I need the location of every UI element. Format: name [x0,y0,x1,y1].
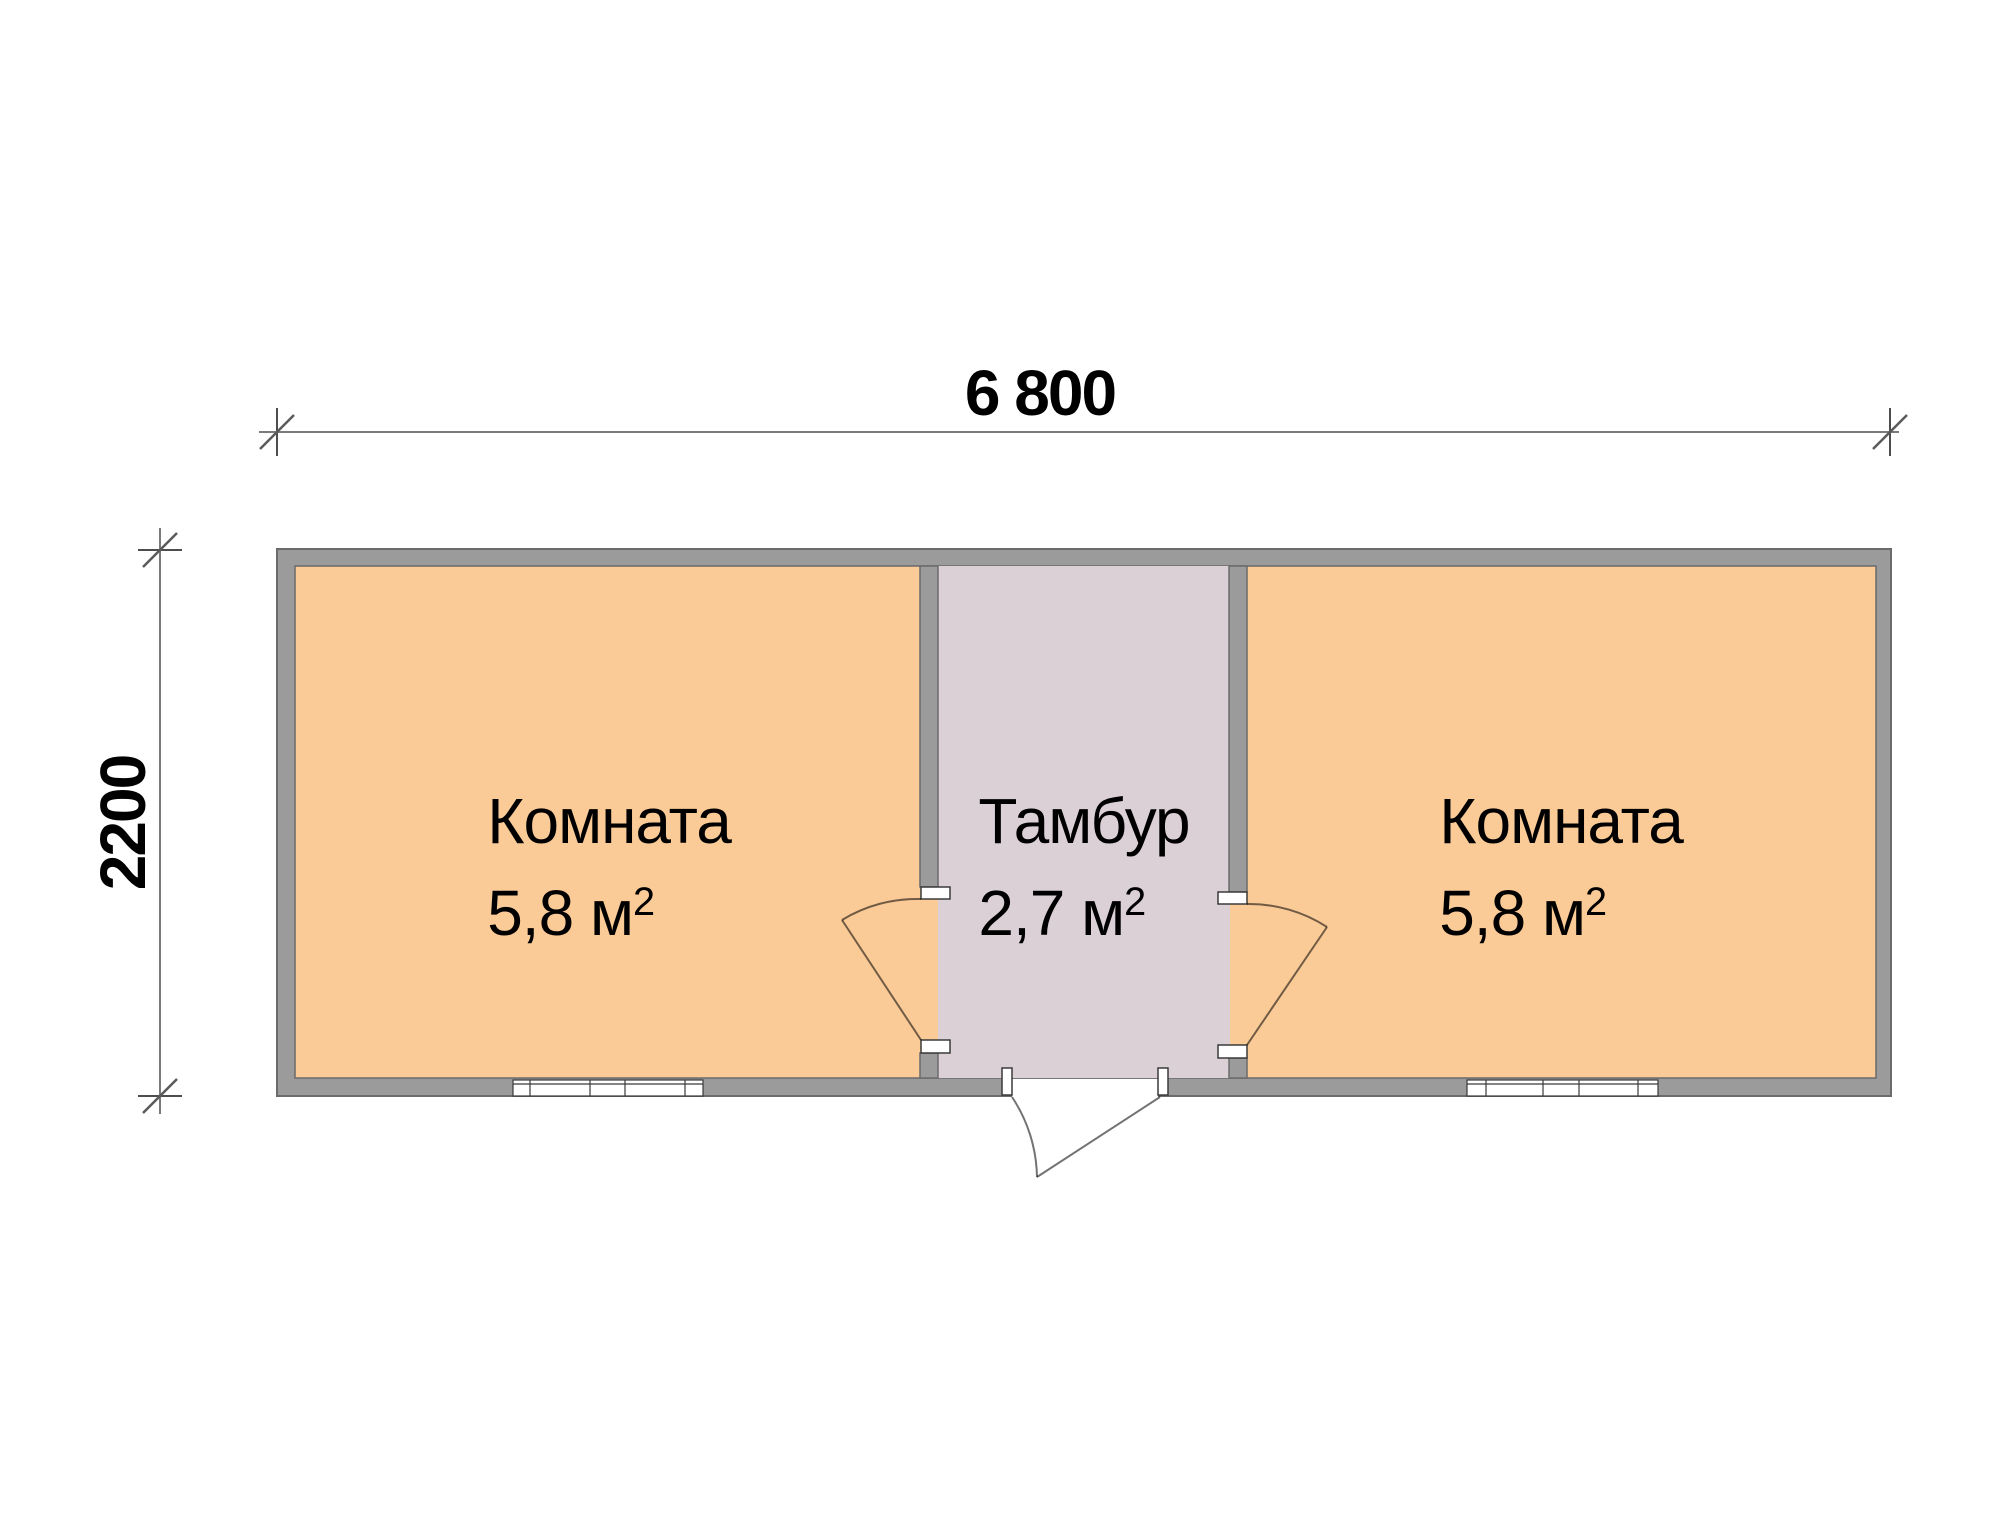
room-left-label: Комната 5,8 м2 [295,775,923,968]
room-right-area-sup: 2 [1585,880,1606,924]
floor-plan: 6 800 2200 Комната 5,8 м2 Тамбур 2,7 м2 … [0,0,2000,1539]
floor-plan-drawing [0,0,2000,1539]
vestibule-area-sup: 2 [1124,880,1145,924]
dimension-height-label: 2200 [86,673,160,973]
entrance-opening [1012,1079,1158,1100]
room-right-name: Комната [1439,775,1683,867]
vestibule-area: 2,7 м2 [978,867,1189,968]
entrance-door [1012,1097,1160,1177]
window-left [513,1080,703,1096]
room-left-area-sup: 2 [633,880,654,924]
vestibule-label: Тамбур 2,7 м2 [938,775,1230,968]
dimension-width-label: 6 800 [890,356,1190,430]
room-right-area: 5,8 м2 [1439,867,1683,968]
room-left-name: Комната [487,775,731,867]
vestibule-name: Тамбур [978,775,1189,867]
room-right-label: Комната 5,8 м2 [1246,775,1876,968]
window-right [1467,1080,1658,1096]
room-left-area: 5,8 м2 [487,867,731,968]
